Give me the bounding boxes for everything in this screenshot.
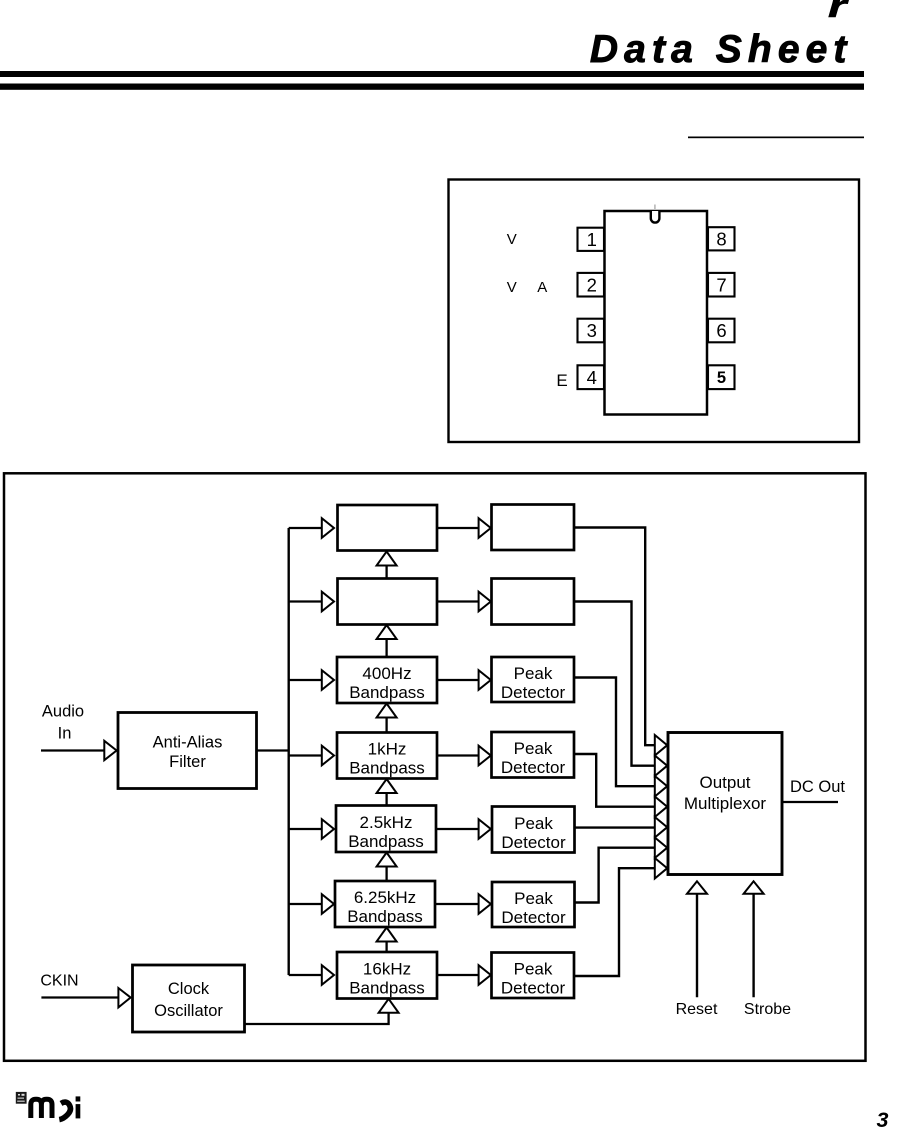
- svg-text:2: 2: [587, 274, 597, 295]
- svg-text:Bandpass: Bandpass: [347, 907, 423, 926]
- svg-text:Clock: Clock: [168, 980, 210, 998]
- svg-text:3: 3: [877, 1108, 889, 1127]
- svg-text:Bandpass: Bandpass: [349, 979, 425, 998]
- svg-text:5: 5: [717, 369, 726, 387]
- svg-text:Bandpass: Bandpass: [349, 683, 425, 702]
- svg-text:400Hz: 400Hz: [362, 664, 411, 683]
- svg-text:Peak: Peak: [514, 889, 553, 908]
- svg-text:Detector: Detector: [501, 833, 566, 852]
- svg-text:V: V: [507, 279, 517, 296]
- svg-text:6: 6: [716, 320, 726, 341]
- svg-text:1kHz: 1kHz: [368, 740, 407, 759]
- svg-text:Data Sheet: Data Sheet: [590, 28, 853, 71]
- svg-text:3: 3: [587, 320, 597, 341]
- svg-text:E: E: [556, 371, 567, 390]
- svg-text:Peak: Peak: [514, 814, 553, 833]
- svg-text:Anti-Alias: Anti-Alias: [153, 734, 223, 752]
- svg-text:Bandpass: Bandpass: [349, 759, 425, 778]
- svg-text:Reset: Reset: [676, 1001, 718, 1018]
- svg-text:Audio: Audio: [42, 703, 84, 721]
- svg-text:16kHz: 16kHz: [363, 960, 411, 979]
- svg-text:Detector: Detector: [501, 908, 566, 927]
- svg-text:6.25kHz: 6.25kHz: [354, 888, 416, 907]
- svg-text:Peak: Peak: [514, 739, 553, 758]
- svg-text:A: A: [537, 279, 547, 296]
- svg-text:In: In: [58, 725, 72, 743]
- svg-text:Peak: Peak: [514, 664, 553, 683]
- svg-text:Peak: Peak: [514, 960, 553, 979]
- svg-text:Bandpass: Bandpass: [348, 832, 424, 851]
- svg-text:Strobe: Strobe: [744, 1001, 791, 1018]
- svg-text:r: r: [828, 0, 849, 24]
- svg-text:Detector: Detector: [501, 979, 566, 998]
- svg-text:Multiplexor: Multiplexor: [684, 794, 767, 813]
- svg-text:Output: Output: [699, 773, 750, 792]
- svg-text:4: 4: [587, 367, 597, 388]
- svg-text:Detector: Detector: [501, 758, 566, 777]
- svg-text:Oscillator: Oscillator: [154, 1002, 223, 1020]
- svg-text:8: 8: [716, 228, 726, 249]
- svg-text:V: V: [507, 231, 517, 248]
- svg-text:1: 1: [587, 229, 597, 250]
- svg-text:2.5kHz: 2.5kHz: [360, 813, 413, 832]
- svg-text:CKIN: CKIN: [40, 973, 78, 990]
- svg-text:7: 7: [716, 274, 726, 295]
- svg-text:DC Out: DC Out: [790, 778, 845, 796]
- svg-text:Detector: Detector: [501, 683, 566, 702]
- svg-text:Filter: Filter: [169, 753, 206, 771]
